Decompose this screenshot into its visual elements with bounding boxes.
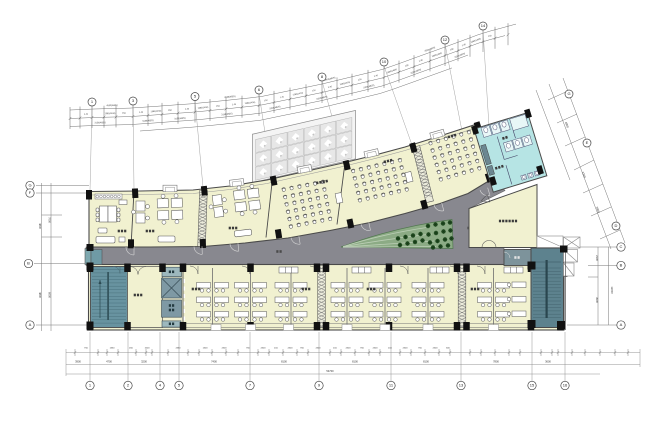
svg-text:1500: 1500 (145, 347, 151, 349)
svg-text:D: D (615, 223, 618, 228)
svg-text:E: E (586, 140, 589, 145)
svg-text:4800: 4800 (38, 223, 42, 229)
svg-text:3150(4825): 3150(4825) (94, 122, 106, 124)
svg-text:8100: 8100 (423, 359, 429, 363)
svg-text:A: A (620, 322, 623, 327)
svg-text:14: 14 (481, 23, 486, 28)
svg-text:2300: 2300 (222, 347, 228, 349)
svg-text:7000: 7000 (48, 217, 52, 223)
svg-text:3900: 3900 (75, 359, 81, 363)
svg-text:16: 16 (563, 383, 568, 388)
svg-text:8100: 8100 (352, 359, 358, 363)
svg-text:7800: 7800 (493, 359, 499, 363)
svg-text:2300: 2300 (261, 347, 267, 349)
svg-text:1300: 1300 (203, 347, 209, 349)
svg-text:13: 13 (459, 383, 464, 388)
svg-text:2300: 2300 (403, 347, 409, 349)
svg-text:G: G (567, 91, 570, 96)
svg-text:2300: 2300 (433, 347, 439, 349)
svg-text:1380(1430): 1380(1430) (105, 113, 116, 115)
svg-text:12000: 12000 (610, 286, 614, 294)
svg-text:1360: 1360 (110, 347, 116, 349)
svg-text:54700: 54700 (326, 369, 334, 373)
svg-text:A: A (29, 322, 32, 327)
svg-text:2300: 2300 (373, 347, 379, 349)
svg-text:2300: 2300 (288, 347, 294, 349)
svg-text:8100: 8100 (281, 359, 287, 363)
svg-text:C: C (620, 244, 623, 249)
svg-text:10: 10 (382, 59, 387, 64)
svg-text:15: 15 (530, 383, 535, 388)
svg-text:2300: 2300 (346, 347, 352, 349)
svg-text:6000: 6000 (48, 292, 52, 298)
svg-text:2300: 2300 (316, 347, 322, 349)
svg-text:B: B (27, 261, 30, 266)
svg-text:2360: 2360 (176, 347, 182, 349)
svg-text:12: 12 (443, 37, 448, 42)
svg-text:G: G (28, 183, 31, 188)
svg-text:B: B (620, 263, 623, 268)
svg-text:3200: 3200 (141, 359, 147, 363)
svg-text:4700: 4700 (106, 359, 112, 363)
svg-text:4500(4825): 4500(4825) (106, 105, 118, 107)
svg-text:3600: 3600 (545, 359, 551, 363)
svg-text:3900: 3900 (595, 297, 599, 303)
svg-text:4800: 4800 (38, 292, 42, 298)
svg-text:7400: 7400 (211, 359, 217, 363)
svg-text:2100: 2100 (595, 255, 599, 261)
